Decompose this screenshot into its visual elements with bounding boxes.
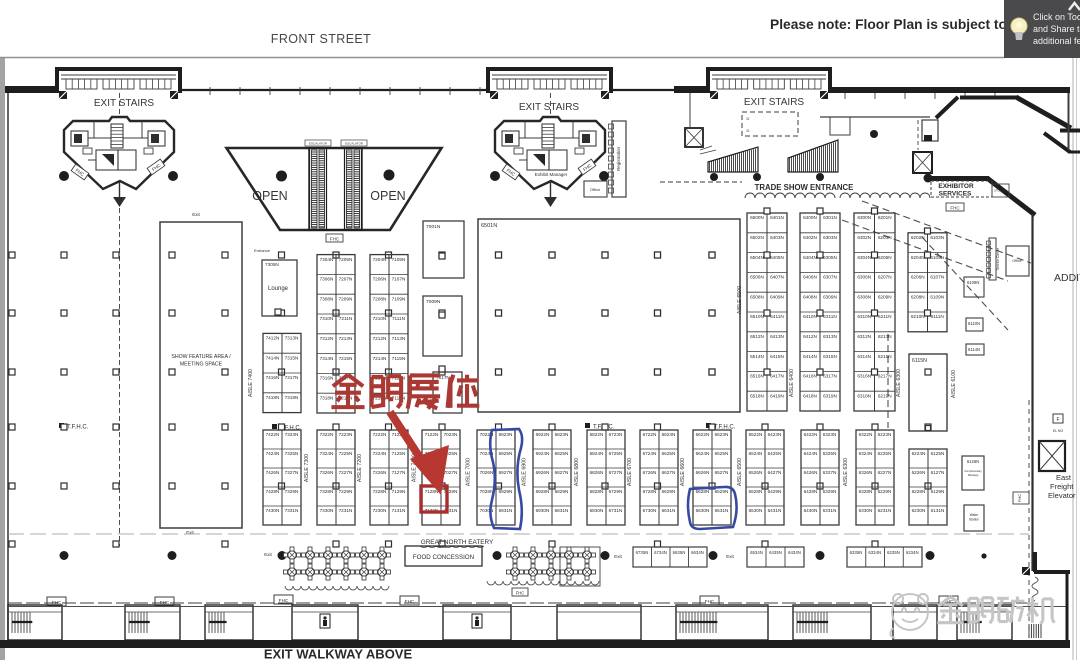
svg-text:7312N: 7312N [320,336,334,341]
svg-text:6423N: 6423N [768,432,782,437]
svg-text:6931N: 6931N [499,508,513,513]
svg-text:7327N: 7327N [285,470,299,475]
svg-text:6626N: 6626N [696,470,710,475]
svg-text:7322N: 7322N [320,432,334,437]
svg-text:7204N: 7204N [373,257,387,262]
svg-text:additional fe: additional fe [1033,36,1080,46]
svg-text:7328N: 7328N [320,489,334,494]
svg-text:6731N: 6731N [609,508,623,513]
svg-text:6830N: 6830N [590,508,604,513]
svg-text:6822N: 6822N [590,432,604,437]
svg-text:6525N: 6525N [715,451,729,456]
svg-text:FHC: FHC [705,599,715,604]
svg-text:6924N: 6924N [536,451,550,456]
svg-text:AISLE 6800: AISLE 6800 [574,458,580,486]
svg-text:6725N: 6725N [609,451,623,456]
svg-text:6922N: 6922N [536,432,550,437]
svg-text:FHC: FHC [1017,494,1022,502]
svg-text:6306N: 6306N [857,275,871,280]
svg-text:Office: Office [1012,259,1021,263]
svg-text:6213N: 6213N [878,334,892,339]
svg-text:7129N: 7129N [392,489,406,494]
svg-text:6324N: 6324N [859,451,873,456]
svg-text:6408N: 6408N [803,294,817,299]
svg-text:AISLE 6900: AISLE 6900 [522,458,528,486]
svg-text:EXIT STAIRS: EXIT STAIRS [744,97,805,108]
svg-text:6402N: 6402N [803,235,817,240]
svg-text:Entrance: Entrance [254,248,271,253]
svg-text:6824N: 6824N [590,451,604,456]
svg-text:7310N: 7310N [320,316,334,321]
svg-text:AISLE 7300: AISLE 7300 [304,454,310,482]
svg-text:7224N: 7224N [373,451,387,456]
svg-text:AISLE 7000: AISLE 7000 [466,458,472,486]
svg-text:7225N: 7225N [339,451,353,456]
svg-text:AISLE 6300: AISLE 6300 [843,458,849,486]
svg-text:6103N: 6103N [930,235,944,240]
svg-text:6229N: 6229N [878,489,892,494]
svg-text:6529N: 6529N [715,489,729,494]
svg-text:7422N: 7422N [266,432,280,437]
svg-text:6923N: 6923N [499,432,513,437]
svg-text:6211N: 6211N [878,314,891,319]
svg-text:6528N: 6528N [749,489,763,494]
svg-text:Station: Station [969,518,979,522]
svg-text:6410N: 6410N [803,314,817,319]
svg-text:Complimentary: Complimentary [964,469,982,473]
svg-text:7430N: 7430N [266,508,280,513]
svg-text:7316N: 7316N [320,376,334,381]
svg-text:6531N: 6531N [715,508,729,513]
svg-text:6730N: 6730N [643,508,657,513]
svg-text:6524N: 6524N [749,451,763,456]
svg-text:6422N: 6422N [804,432,818,437]
svg-text:6400N: 6400N [803,215,817,220]
svg-text:7205N: 7205N [339,257,353,262]
svg-text:SHOW FEATURE AREA /: SHOW FEATURE AREA / [171,354,231,360]
svg-text:6312N: 6312N [857,334,871,339]
svg-text:6331N: 6331N [823,508,837,513]
svg-text:6627N: 6627N [662,470,676,475]
svg-text:Massage: Massage [968,473,979,477]
svg-text:7330N: 7330N [320,508,334,513]
svg-text:6326N: 6326N [859,470,873,475]
svg-text:6303N: 6303N [823,235,837,240]
svg-text:7211N: 7211N [339,316,352,321]
svg-text:6415N: 6415N [770,354,784,359]
svg-text:Lounge: Lounge [268,286,289,292]
svg-text:6323N: 6323N [823,432,837,437]
svg-text:AISLE 6700: AISLE 6700 [627,458,633,486]
svg-text:6735N: 6735N [636,550,649,555]
svg-text:6114N: 6114N [968,347,980,352]
svg-text:6300N: 6300N [857,215,871,220]
svg-text:T.F.H.C.: T.F.H.C. [67,425,89,431]
svg-text:ADDITIONAL: ADDITIONAL [1054,272,1080,284]
svg-text:6727N: 6727N [609,470,623,475]
svg-text:6723N: 6723N [609,432,623,437]
svg-text:7315N: 7315N [285,355,299,360]
svg-text:7113N: 7113N [392,336,405,341]
svg-text:EXHIBITOR: EXHIBITOR [938,183,974,190]
svg-text:6225N: 6225N [878,451,892,456]
svg-text:6426N: 6426N [804,470,818,475]
svg-text:6301N: 6301N [823,215,837,220]
svg-text:OPEN: OPEN [370,189,405,203]
svg-text:6305N: 6305N [823,255,837,260]
svg-text:6105N: 6105N [930,255,944,260]
svg-text:7111N: 7111N [392,316,405,321]
svg-text:Exit: Exit [264,552,272,557]
svg-text:6629N: 6629N [662,489,676,494]
svg-text:7001N: 7001N [426,224,441,230]
svg-text:7412N: 7412N [266,336,280,341]
svg-text:Registration: Registration [616,146,621,171]
svg-text:7318N: 7318N [320,395,334,400]
svg-text:6831N: 6831N [555,508,569,513]
svg-text:ESCALATOR: ESCALATOR [345,142,364,146]
svg-text:6926N: 6926N [536,470,550,475]
svg-text:6126N: 6126N [967,459,979,464]
svg-text:7109N: 7109N [392,296,406,301]
svg-text:6413N: 6413N [770,334,784,339]
svg-text:7105N: 7105N [392,257,406,262]
svg-text:FRONT STREET: FRONT STREET [271,32,371,46]
svg-text:7304N: 7304N [320,257,334,262]
svg-text:6506N: 6506N [750,275,764,280]
svg-text:6500N: 6500N [750,215,764,220]
svg-text:6329N: 6329N [823,489,837,494]
svg-text:AISLE 6300: AISLE 6300 [896,369,902,397]
svg-text:6317N: 6317N [823,374,837,379]
svg-text:7009N: 7009N [426,299,441,305]
svg-text:6624N: 6624N [696,451,710,456]
svg-text:6418N: 6418N [803,393,817,398]
svg-text:7206N: 7206N [373,277,387,282]
svg-text:6634N: 6634N [691,550,704,555]
svg-text:Exit: Exit [614,554,622,559]
svg-text:Exhibit Manager: Exhibit Manager [535,172,568,177]
svg-text:6826N: 6826N [590,470,604,475]
svg-text:FHC: FHC [516,590,525,595]
svg-text:Office: Office [590,187,601,192]
svg-text:6109N: 6109N [930,294,944,299]
svg-text:6403N: 6403N [770,235,784,240]
svg-text:STORAGE: STORAGE [994,189,1007,193]
svg-text:SERVICES: SERVICES [939,191,972,198]
svg-text:6322N: 6322N [859,432,873,437]
svg-text:6623N: 6623N [662,432,676,437]
svg-text:OPEN: OPEN [252,189,287,203]
svg-text:6516N: 6516N [750,374,764,379]
svg-text:6335N: 6335N [850,550,863,555]
svg-text:6228N: 6228N [912,489,926,494]
svg-text:Water: Water [970,513,979,517]
svg-text:6930N: 6930N [536,508,550,513]
svg-text:6728N: 6728N [643,489,657,494]
svg-text:7426N: 7426N [266,470,280,475]
svg-text:6319N: 6319N [823,393,837,398]
svg-text:6131N: 6131N [931,508,945,513]
svg-text:6504N: 6504N [750,255,764,260]
svg-text:6328N: 6328N [859,489,873,494]
svg-text:7230N: 7230N [373,508,387,513]
svg-text:7313N: 7313N [285,336,299,341]
svg-text:6217N: 6217N [878,374,892,379]
svg-text:EXIT WALKWAY ABOVE: EXIT WALKWAY ABOVE [264,647,413,660]
svg-text:6203N: 6203N [878,235,892,240]
svg-text:7207N: 7207N [339,277,353,282]
svg-text:7323N: 7323N [285,432,299,437]
svg-text:6219N: 6219N [878,393,892,398]
svg-text:6430N: 6430N [804,508,818,513]
svg-text:7028N: 7028N [480,489,494,494]
svg-text:FHC: FHC [160,600,170,605]
svg-text:6425N: 6425N [768,451,782,456]
svg-text:6527N: 6527N [715,470,729,475]
svg-text:Exit: Exit [726,554,734,559]
svg-text:FHC: FHC [405,599,415,604]
svg-text:7212N: 7212N [373,336,387,341]
svg-text:6310N: 6310N [857,314,871,319]
svg-text:Exit: Exit [192,212,200,217]
svg-text:6201N: 6201N [878,215,892,220]
svg-text:6534N: 6534N [750,550,763,555]
svg-text:6404N: 6404N [803,255,817,260]
svg-text:6318N: 6318N [857,393,871,398]
svg-text:6223N: 6223N [878,432,892,437]
svg-text:6631N: 6631N [662,508,676,513]
svg-text:7416N: 7416N [266,375,280,380]
svg-text:6414N: 6414N [803,354,817,359]
svg-text:6325N: 6325N [823,451,837,456]
svg-text:FOOD CONCESSION: FOOD CONCESSION [413,554,474,561]
svg-text:EL NO: EL NO [1053,429,1064,433]
svg-text:AISLE 7200: AISLE 7200 [357,454,363,482]
svg-text:6334N: 6334N [868,550,881,555]
svg-text:6226N: 6226N [912,470,926,475]
svg-text:7131N: 7131N [392,508,406,513]
svg-text:7226N: 7226N [373,470,387,475]
svg-text:TRADE SHOW ENTRANCE: TRADE SHOW ENTRANCE [755,183,854,192]
svg-text:7215N: 7215N [339,356,353,361]
svg-text:6405N: 6405N [770,255,784,260]
svg-text:6208N: 6208N [911,294,925,299]
svg-text:6502N: 6502N [750,235,764,240]
svg-text:7325N: 7325N [285,451,299,456]
svg-text:6929N: 6929N [499,489,513,494]
svg-text:6522N: 6522N [749,432,763,437]
svg-text:FHC: FHC [950,205,960,210]
svg-text:6928N: 6928N [536,489,550,494]
svg-text:7223N: 7223N [339,432,353,437]
svg-text:7308N: 7308N [320,296,334,301]
svg-text:6209N: 6209N [878,294,892,299]
svg-text:EXIT STAIRS: EXIT STAIRS [519,102,580,113]
svg-text:AISLE 6500: AISLE 6500 [737,286,743,314]
svg-text:7208N: 7208N [373,296,387,301]
svg-text:6428N: 6428N [804,489,818,494]
svg-text:6829N: 6829N [555,489,569,494]
svg-text:6823N: 6823N [555,432,569,437]
svg-text:6427N: 6427N [768,470,782,475]
svg-text:ESCALATOR: ESCALATOR [309,142,328,146]
svg-text:6327N: 6327N [823,470,837,475]
svg-text:6523N: 6523N [715,432,729,437]
svg-text:6827N: 6827N [555,470,569,475]
svg-text:Elevator: Elevator [1048,491,1076,500]
svg-text:6722N: 6722N [643,432,657,437]
svg-text:6307N: 6307N [823,275,837,280]
svg-text:7023N: 7023N [444,432,458,437]
svg-text:6127N: 6127N [931,470,945,475]
svg-text:and Share to: and Share to [1033,24,1080,34]
svg-text:6429N: 6429N [768,489,782,494]
svg-text:7107N: 7107N [392,277,406,282]
svg-text:7329N: 7329N [285,489,299,494]
svg-text:6411N: 6411N [770,314,783,319]
svg-text:6304N: 6304N [857,255,871,260]
svg-text:7418N: 7418N [266,395,280,400]
svg-text:7027N: 7027N [444,470,458,475]
svg-text:6424N: 6424N [804,451,818,456]
svg-text:7324N: 7324N [320,451,334,456]
svg-text:6314N: 6314N [857,354,871,359]
svg-text:7424N: 7424N [266,451,280,456]
svg-text:6110N: 6110N [968,321,980,326]
svg-text:6316N: 6316N [857,374,871,379]
svg-text:7229N: 7229N [339,489,353,494]
svg-text:6202N: 6202N [911,235,925,240]
svg-text:6308N: 6308N [857,294,871,299]
svg-text:6510N: 6510N [750,314,764,319]
svg-text:6417N: 6417N [770,374,784,379]
svg-text:7128N: 7128N [425,489,439,494]
svg-text:7127N: 7127N [392,470,406,475]
svg-text:7115N: 7115N [392,356,405,361]
svg-text:6734N: 6734N [654,550,667,555]
svg-text:6234N: 6234N [906,550,919,555]
svg-text:6625N: 6625N [662,451,676,456]
svg-text:6210N: 6210N [911,314,925,319]
svg-text:7231N: 7231N [339,508,353,513]
svg-text:6828N: 6828N [590,489,604,494]
svg-text:EXIT STAIRS: EXIT STAIRS [94,98,155,109]
svg-text:7331N: 7331N [285,508,299,513]
svg-text:6412N: 6412N [803,334,817,339]
svg-text:6409N: 6409N [770,294,784,299]
svg-text:6231N: 6231N [878,508,892,513]
svg-text:6235N: 6235N [887,550,900,555]
svg-text:AISLE 6600: AISLE 6600 [680,458,686,486]
svg-text:6129N: 6129N [931,489,945,494]
svg-text:GREAT NORTH EATERY: GREAT NORTH EATERY [421,539,494,546]
svg-text:6315N: 6315N [823,354,837,359]
svg-text:6927N: 6927N [499,470,513,475]
svg-text:6635N: 6635N [673,550,686,555]
svg-text:6108N: 6108N [967,280,979,285]
svg-text:6204N: 6204N [911,255,925,260]
svg-text:7428N: 7428N [266,489,280,494]
svg-text:7213N: 7213N [339,336,353,341]
svg-text:6501N: 6501N [481,223,497,229]
svg-text:7210N: 7210N [373,316,387,321]
svg-text:6419N: 6419N [770,393,784,398]
svg-text:F: F [1056,417,1059,423]
svg-text:D: D [747,128,750,133]
svg-text:6230N: 6230N [912,508,926,513]
svg-text:7305N: 7305N [265,262,279,267]
svg-text:6125N: 6125N [931,451,945,456]
svg-text:6724N: 6724N [643,451,657,456]
svg-text:7228N: 7228N [373,489,387,494]
svg-text:7119N: 7119N [392,395,405,400]
svg-text:6508N: 6508N [750,294,764,299]
svg-text:7414N: 7414N [266,355,280,360]
svg-text:6406N: 6406N [803,275,817,280]
svg-text:Service Centre: Service Centre [996,248,1000,271]
svg-text:6115N: 6115N [912,358,927,364]
svg-text:7026N: 7026N [480,470,494,475]
svg-text:6530N: 6530N [749,508,763,513]
svg-text:6107N: 6107N [930,275,944,280]
svg-text:7209N: 7209N [339,296,353,301]
svg-text:7227N: 7227N [339,470,353,475]
svg-text:6431N: 6431N [768,508,782,513]
svg-text:6512N: 6512N [750,334,764,339]
svg-text:East: East [1056,473,1072,482]
svg-text:6726N: 6726N [643,470,657,475]
svg-text:Click on Tool: Click on Tool [1033,12,1080,22]
svg-text:6435N: 6435N [769,550,782,555]
svg-text:6224N: 6224N [912,451,926,456]
svg-text:6111N: 6111N [931,314,944,319]
svg-text:6206N: 6206N [911,275,925,280]
svg-text:6416N: 6416N [803,374,817,379]
svg-text:7122N: 7122N [425,432,439,437]
svg-text:6526N: 6526N [749,470,763,475]
svg-text:6227N: 6227N [878,470,892,475]
svg-text:6825N: 6825N [555,451,569,456]
svg-text:6628N: 6628N [696,489,710,494]
svg-text:6207N: 6207N [878,275,892,280]
svg-text:6215N: 6215N [878,354,892,359]
svg-text:6630N: 6630N [696,508,710,513]
svg-text:AISLE 6100: AISLE 6100 [951,370,957,398]
svg-text:6925N: 6925N [499,451,513,456]
svg-text:FHC: FHC [279,598,289,603]
svg-text:7125N: 7125N [392,451,406,456]
svg-text:Freight: Freight [1050,482,1074,491]
svg-text:6313N: 6313N [823,334,837,339]
svg-text:6407N: 6407N [770,275,784,280]
svg-text:AISLE 6500: AISLE 6500 [737,458,743,486]
svg-text:AISLE 7400: AISLE 7400 [248,369,254,397]
svg-text:7319N: 7319N [285,395,299,400]
svg-text:6309N: 6309N [823,294,837,299]
svg-text:6622N: 6622N [696,432,710,437]
svg-text:7306N: 7306N [320,277,334,282]
svg-text:FHC: FHC [52,600,62,605]
svg-text:7222N: 7222N [373,432,387,437]
svg-text:6311N: 6311N [823,314,836,319]
svg-text:6514N: 6514N [750,354,764,359]
svg-text:6401N: 6401N [770,215,784,220]
svg-text:6330N: 6330N [859,508,873,513]
svg-text:6205N: 6205N [878,255,892,260]
svg-text:6729N: 6729N [609,489,623,494]
svg-text:D: D [747,116,750,121]
